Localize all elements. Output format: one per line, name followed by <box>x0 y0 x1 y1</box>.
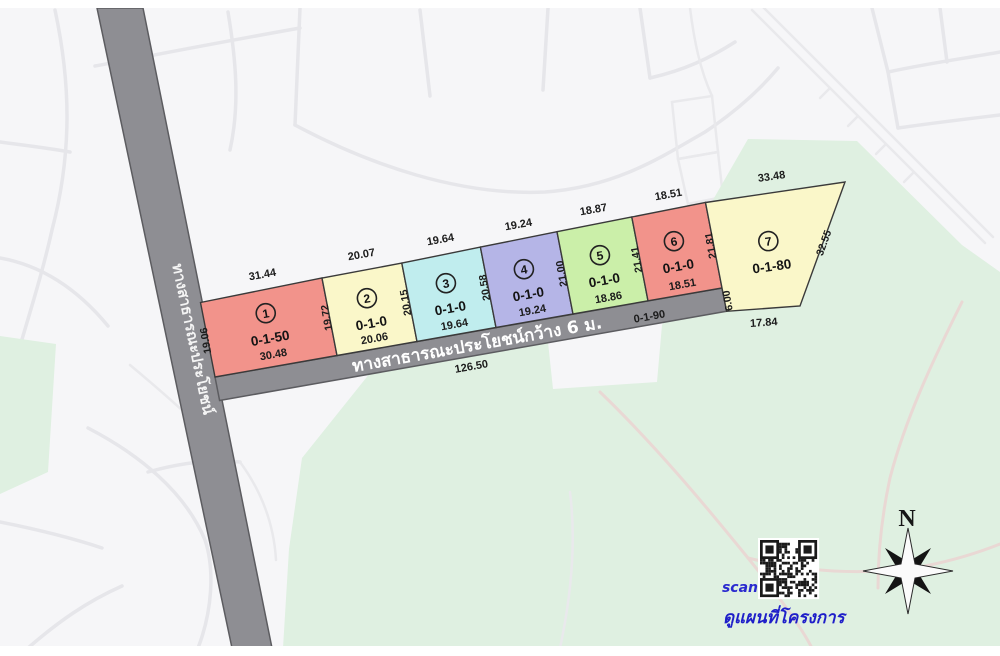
dim-plot7-bottom: 17.84 <box>750 316 779 330</box>
top-margin <box>0 0 1000 8</box>
scan-label: scan <box>722 580 758 596</box>
plot-map-svg: ทางสาธารณะประโยชน์ ทางสาธารณะประโยชน์กว้… <box>0 0 1000 656</box>
green-area-left <box>0 336 56 494</box>
compass-north-label: N <box>898 506 916 532</box>
bottom-margin <box>0 646 1000 656</box>
qr-code <box>758 538 819 599</box>
qr-caption: ดูแผนที่โครงการ <box>723 605 848 628</box>
land-plot-map-screenshot: ทางสาธารณะประโยชน์ ทางสาธารณะประโยชน์กว้… <box>0 0 1000 656</box>
